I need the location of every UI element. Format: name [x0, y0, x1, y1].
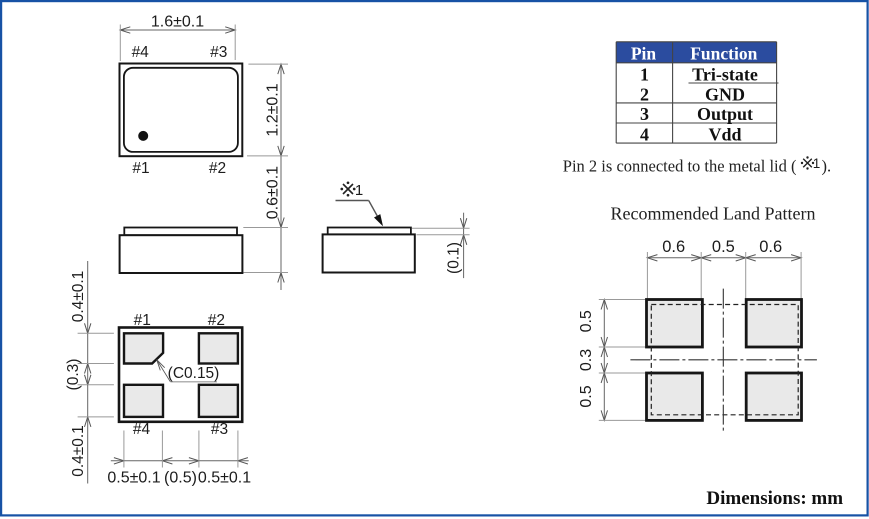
svg-text:Output: Output [697, 104, 753, 124]
svg-text:0.4±0.1: 0.4±0.1 [70, 425, 87, 477]
svg-text:1: 1 [813, 156, 821, 171]
svg-text:1.6±0.1: 1.6±0.1 [151, 14, 204, 31]
svg-text:0.5±0.1: 0.5±0.1 [198, 470, 251, 487]
svg-text:(C0.15): (C0.15) [168, 365, 220, 382]
svg-text:1: 1 [355, 182, 363, 199]
svg-text:Pin: Pin [631, 43, 657, 63]
svg-text:#2: #2 [208, 312, 225, 329]
svg-text:(0.3): (0.3) [65, 359, 82, 391]
svg-text:#2: #2 [209, 160, 226, 177]
svg-text:0.5: 0.5 [712, 238, 735, 256]
svg-text:0.4±0.1: 0.4±0.1 [70, 271, 87, 323]
svg-text:Dimensions: mm: Dimensions: mm [706, 488, 843, 509]
svg-text:0.6: 0.6 [759, 238, 782, 256]
svg-text:(0.5): (0.5) [164, 470, 197, 487]
svg-text:).: ). [822, 157, 832, 176]
svg-text:#4: #4 [133, 421, 151, 438]
svg-text:#4: #4 [132, 44, 150, 61]
svg-text:Function: Function [690, 43, 757, 63]
svg-text:Pin 2 is connected to the meta: Pin 2 is connected to the metal lid ( [563, 157, 797, 176]
svg-text:2: 2 [640, 85, 649, 105]
svg-text:Vdd: Vdd [708, 124, 741, 144]
svg-text:0.5±0.1: 0.5±0.1 [107, 470, 160, 487]
svg-text:#3: #3 [211, 421, 228, 438]
svg-text:1.2±0.1: 1.2±0.1 [265, 83, 282, 136]
svg-text:0.6±0.1: 0.6±0.1 [265, 166, 282, 219]
svg-text:Tri-state: Tri-state [692, 64, 758, 84]
svg-text:Recommended Land Pattern: Recommended Land Pattern [611, 204, 816, 224]
svg-text:#3: #3 [210, 44, 227, 61]
svg-text:GND: GND [705, 85, 745, 105]
svg-text:#1: #1 [134, 312, 151, 329]
svg-text:0.5: 0.5 [578, 310, 595, 332]
svg-text:0.3: 0.3 [578, 349, 595, 371]
svg-text:#1: #1 [132, 160, 149, 177]
svg-text:3: 3 [640, 104, 649, 124]
svg-text:(0.1): (0.1) [446, 242, 463, 274]
svg-text:1: 1 [640, 64, 649, 84]
svg-text:0.6: 0.6 [662, 238, 685, 256]
svg-text:4: 4 [640, 124, 649, 144]
svg-text:0.5: 0.5 [578, 385, 595, 407]
